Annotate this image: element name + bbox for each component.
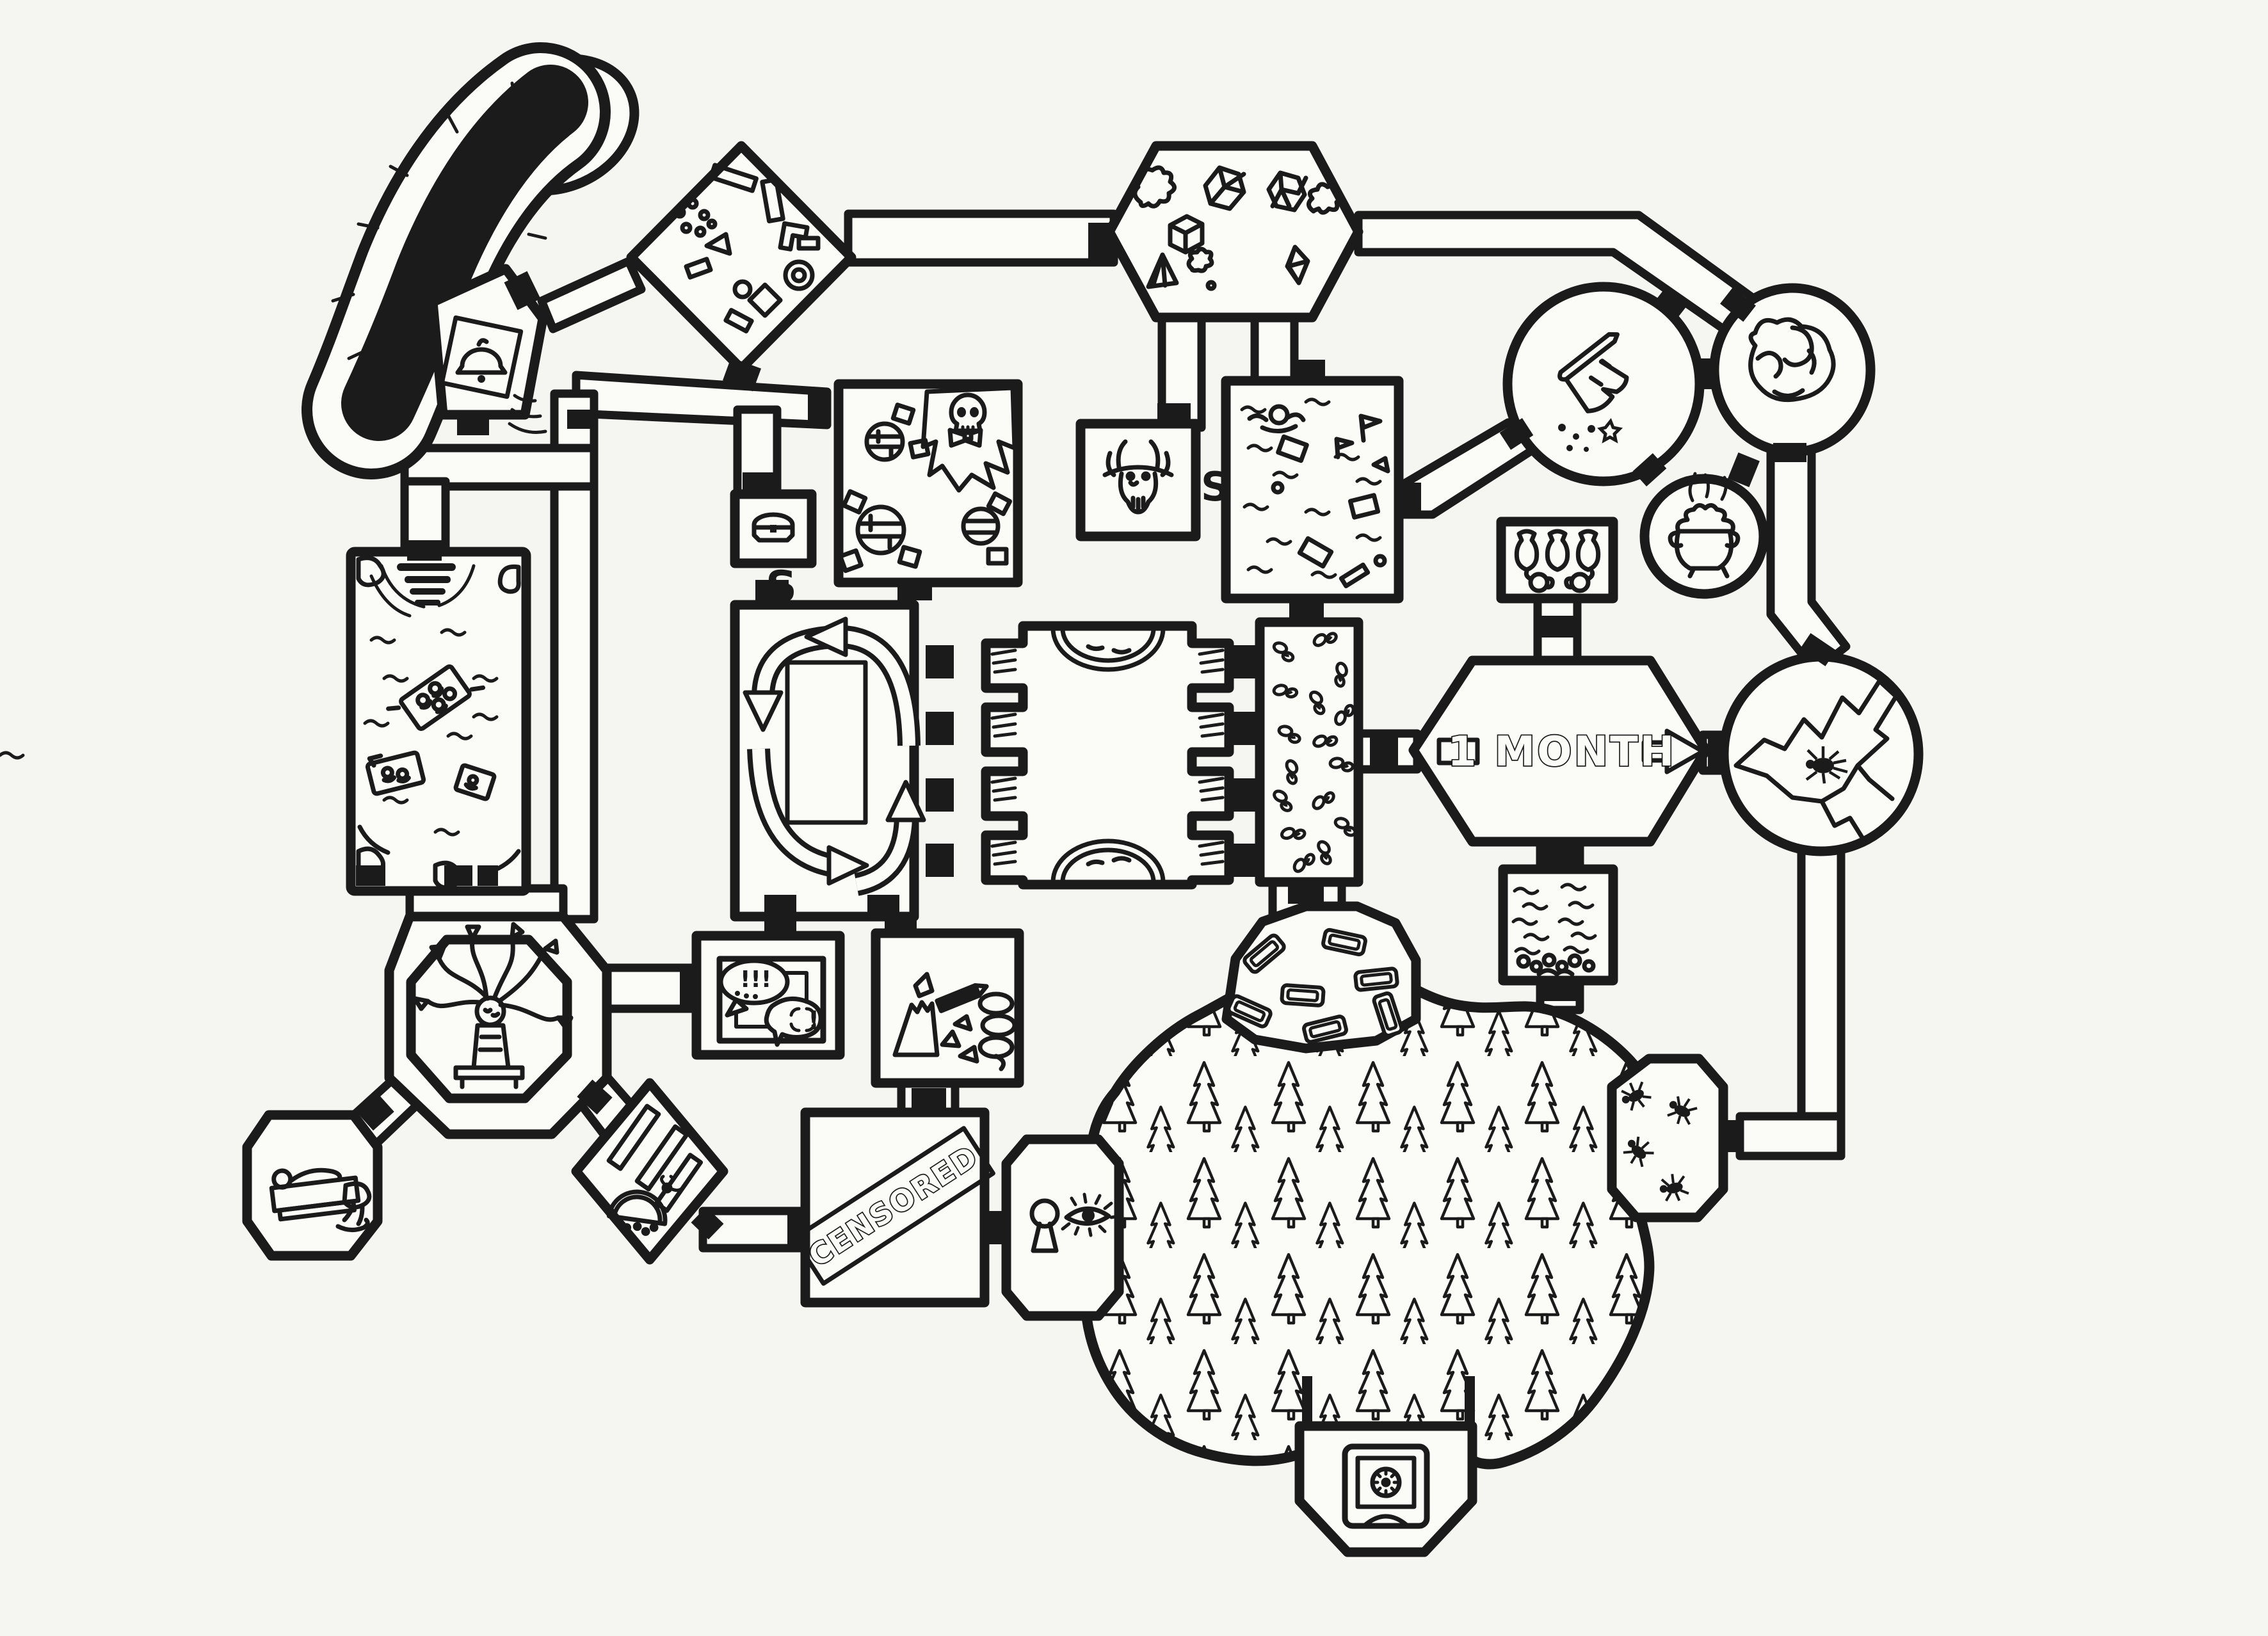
dungeon-map-scan: CENSORED 1 MONTH S S !!! !: [0, 0, 2268, 1636]
ant-room: [1612, 1059, 1723, 1217]
corridor-junk-gem: [848, 214, 1114, 262]
cauldron-circle: [1645, 479, 1764, 594]
junk-room: [631, 146, 851, 369]
corridor-gem-flood: [1255, 315, 1294, 384]
secret-door-chest-label: S: [766, 562, 797, 613]
demon-room: [1081, 424, 1196, 536]
month-label: 1 MONTH: [1448, 728, 1677, 776]
corridor-bell-junk: [542, 261, 641, 329]
crevasse-circle: [1724, 657, 1918, 851]
corridor-crevasse-ant-h: [1740, 1116, 1841, 1156]
secret-door-demon-label: S: [1201, 463, 1230, 510]
cell-room: [986, 626, 1229, 885]
bone-room: [1260, 622, 1358, 882]
corridor-crevasse-ant-v: [1801, 846, 1841, 1156]
corridor-junk-skull: [576, 375, 827, 425]
bubble-anger-label: !: [808, 1006, 819, 1036]
bubble-exclaim-label: !!!: [740, 966, 771, 993]
crate-clearing: [1226, 906, 1416, 1048]
